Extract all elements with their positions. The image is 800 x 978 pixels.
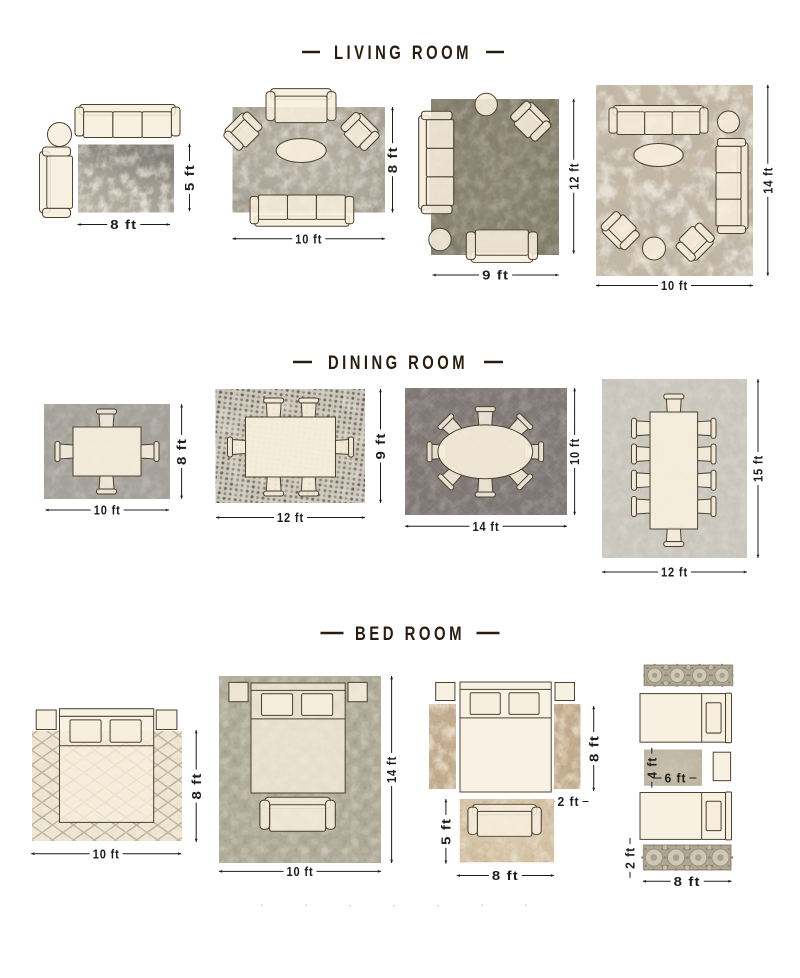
svg-text:5 ft: 5 ft (439, 818, 454, 845)
svg-text:DINING ROOM: DINING ROOM (328, 353, 468, 374)
svg-text:5 ft: 5 ft (182, 164, 197, 191)
svg-text:8 ft: 8 ft (586, 735, 601, 762)
svg-text:9 ft: 9 ft (373, 433, 388, 460)
svg-text:8 ft: 8 ft (674, 874, 701, 889)
svg-text:8 ft: 8 ft (385, 146, 400, 173)
svg-text:9 ft: 9 ft (482, 268, 509, 283)
svg-text:2 ft: 2 ft (558, 794, 580, 809)
svg-text:10 ft: 10 ft (295, 231, 322, 246)
svg-text:10 ft: 10 ft (661, 278, 688, 293)
svg-text:10 ft: 10 ft (94, 503, 121, 518)
svg-text:BED ROOM: BED ROOM (355, 624, 465, 645)
svg-text:8 ft: 8 ft (189, 773, 204, 800)
svg-text:8 ft: 8 ft (174, 438, 189, 465)
svg-text:LIVING ROOM: LIVING ROOM (334, 43, 472, 64)
svg-text:8 ft: 8 ft (492, 868, 519, 883)
svg-text:6 ft: 6 ft (665, 771, 687, 786)
svg-text:8 ft: 8 ft (110, 217, 137, 232)
svg-text:14 ft: 14 ft (760, 167, 775, 194)
svg-text:2 ft: 2 ft (623, 847, 638, 869)
svg-text:12 ft: 12 ft (566, 163, 581, 190)
svg-text:14 ft: 14 ft (473, 519, 500, 534)
svg-text:4 ft: 4 ft (644, 757, 659, 779)
svg-text:12 ft: 12 ft (277, 510, 304, 525)
svg-text:10 ft: 10 ft (567, 438, 582, 465)
svg-text:12 ft: 12 ft (661, 565, 688, 580)
svg-text:10 ft: 10 ft (93, 846, 120, 861)
svg-text:14 ft: 14 ft (384, 756, 399, 783)
svg-text:15 ft: 15 ft (751, 455, 766, 482)
svg-text:10 ft: 10 ft (287, 864, 314, 879)
